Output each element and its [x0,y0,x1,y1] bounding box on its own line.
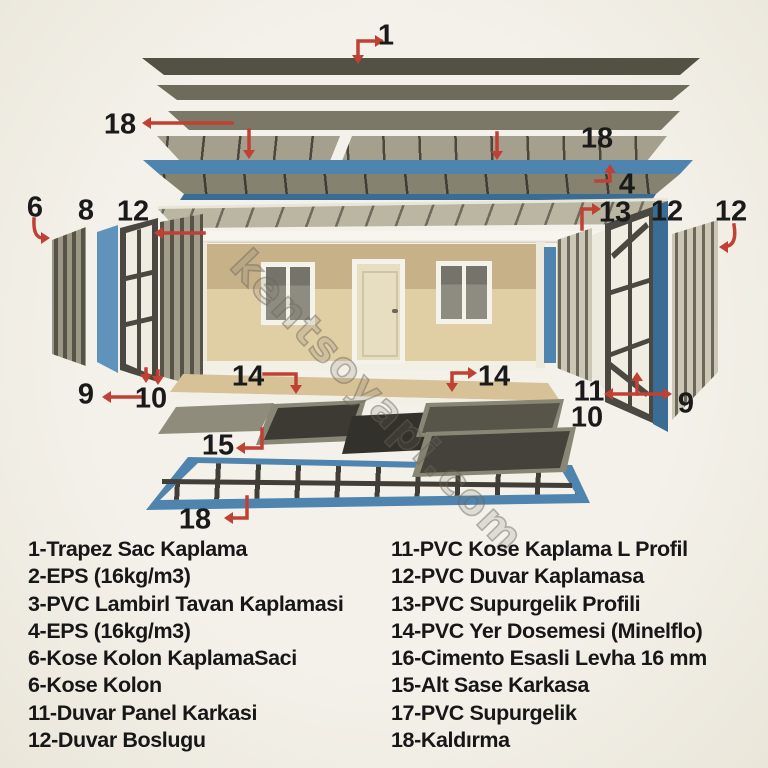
callout-labels: 1 18 18 4 13 6 8 12 12 12 9 10 14 14 11 … [0,0,768,540]
legend-item: 11-Duvar Panel Karkasi [28,700,343,727]
legend-item: 6-Kose Kolon [28,672,343,699]
legend-item: 12-PVC Duvar Kaplamasa [391,563,707,590]
callout-13: 13 [599,197,631,230]
legend-item: 2-EPS (16kg/m3) [28,563,343,590]
legend-item: 3-PVC Lambirl Tavan Kaplamasi [28,591,343,618]
callout-14-right: 14 [478,361,510,394]
callout-10-left: 10 [135,383,167,416]
legend-item: 13-PVC Supurgelik Profili [391,591,707,618]
callout-12-mid: 12 [651,196,683,229]
legend-item: 15-Alt Sase Karkasa [391,672,707,699]
legend-item: 12-Duvar Boslugu [28,727,343,754]
legend-left-column: 1-Trapez Sac Kaplama 2-EPS (16kg/m3) 3-P… [28,536,343,754]
legend-item: 1-Trapez Sac Kaplama [28,536,343,563]
callout-12-far: 12 [715,196,747,229]
callout-8: 8 [78,195,94,228]
legend-right-column: 11-PVC Kose Kaplama L Profil 12-PVC Duva… [391,536,707,754]
callout-9-right: 9 [678,388,694,421]
callout-14-left: 14 [232,361,264,394]
callout-12-left: 12 [117,196,149,229]
legend-item: 17-PVC Supurgelik [391,700,707,727]
callout-15: 15 [202,430,234,463]
callout-18-bottom: 18 [179,504,211,537]
legend-item: 18-Kaldırma [391,727,707,754]
callout-6: 6 [27,192,43,225]
callout-18-right: 18 [581,123,613,156]
callout-1: 1 [378,20,394,53]
diagram-canvas: kentsoyapi.com [0,0,768,540]
callout-9-left: 9 [78,379,94,412]
callout-10-right: 10 [571,402,603,435]
legend-item: 6-Kose Kolon KaplamaSaci [28,645,343,672]
legend-item: 16-Cimento Esasli Levha 16 mm [391,645,707,672]
legend-item: 4-EPS (16kg/m3) [28,618,343,645]
legend-item: 14-PVC Yer Dosemesi (Minelflo) [391,618,707,645]
legend-item: 11-PVC Kose Kaplama L Profil [391,536,707,563]
callout-18-left: 18 [104,109,136,142]
exploded-container-house-diagram: kentsoyapi.com [0,0,768,768]
